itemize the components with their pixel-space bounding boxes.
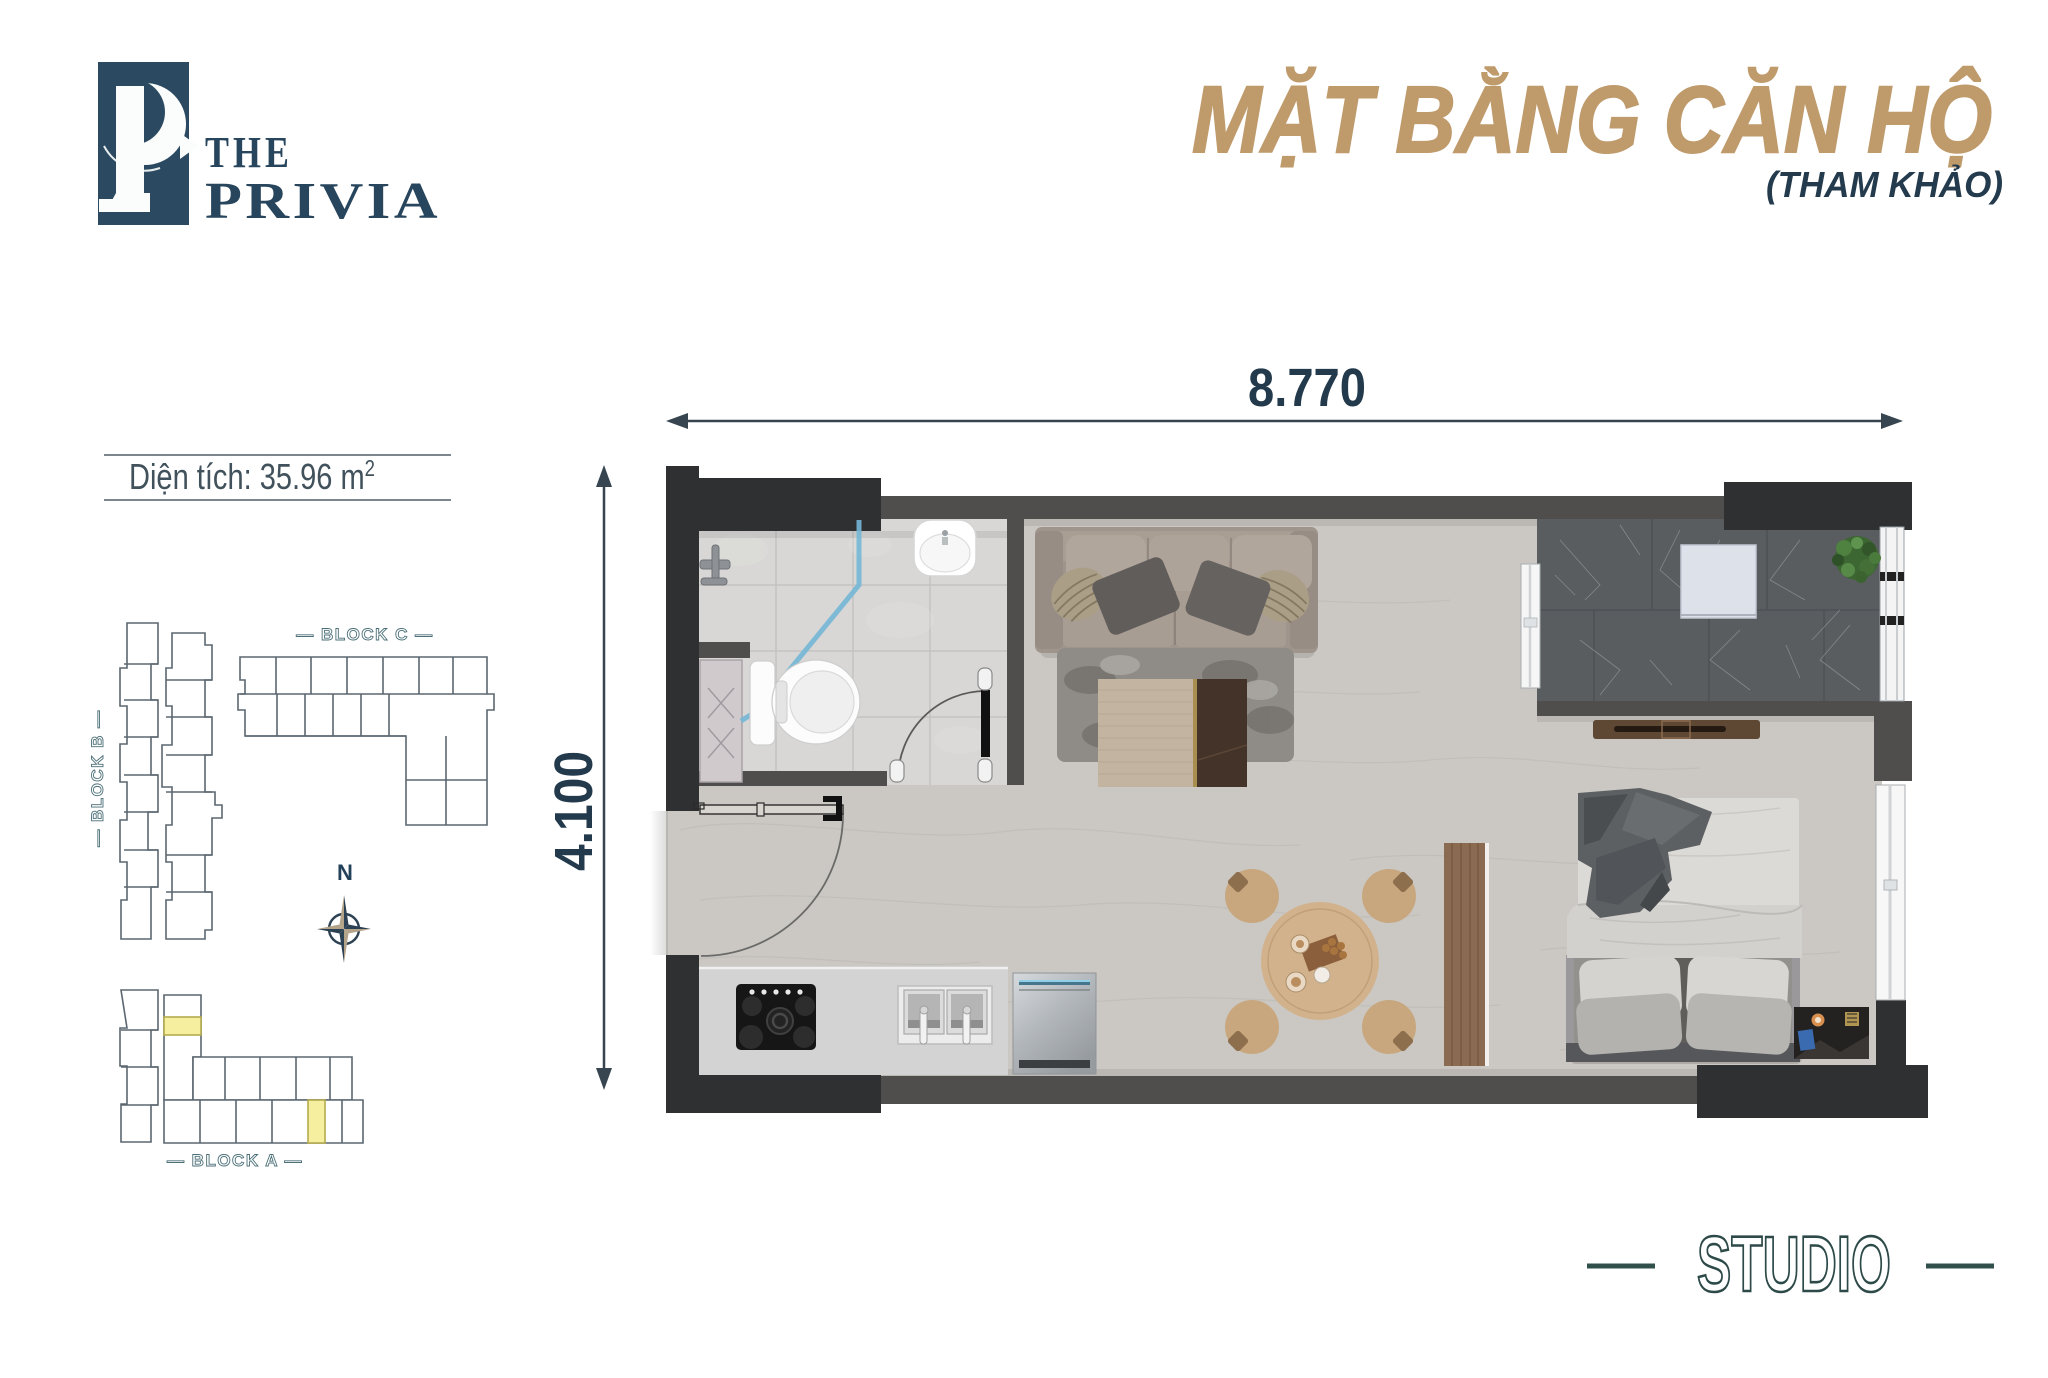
svg-text:N: N [337, 860, 353, 885]
svg-text:Diện tích: 35.96 m2: Diện tích: 35.96 m2 [129, 455, 375, 497]
svg-text:— BLOCK C —: — BLOCK C — [296, 625, 433, 644]
svg-text:8.770: 8.770 [1248, 358, 1366, 418]
svg-text:4.100: 4.100 [544, 751, 604, 871]
svg-text:STUDIO: STUDIO [1697, 1219, 1891, 1308]
svg-text:THE: THE [205, 128, 293, 177]
svg-text:(THAM KHẢO): (THAM KHẢO) [1766, 164, 2003, 205]
svg-text:— BLOCK B —: — BLOCK B — [88, 709, 107, 846]
svg-text:MẶT BẰNG CĂN HỘ: MẶT BẰNG CĂN HỘ [1192, 67, 1992, 173]
svg-text:PRIVIA: PRIVIA [205, 173, 441, 230]
svg-text:— BLOCK A —: — BLOCK A — [167, 1151, 303, 1170]
